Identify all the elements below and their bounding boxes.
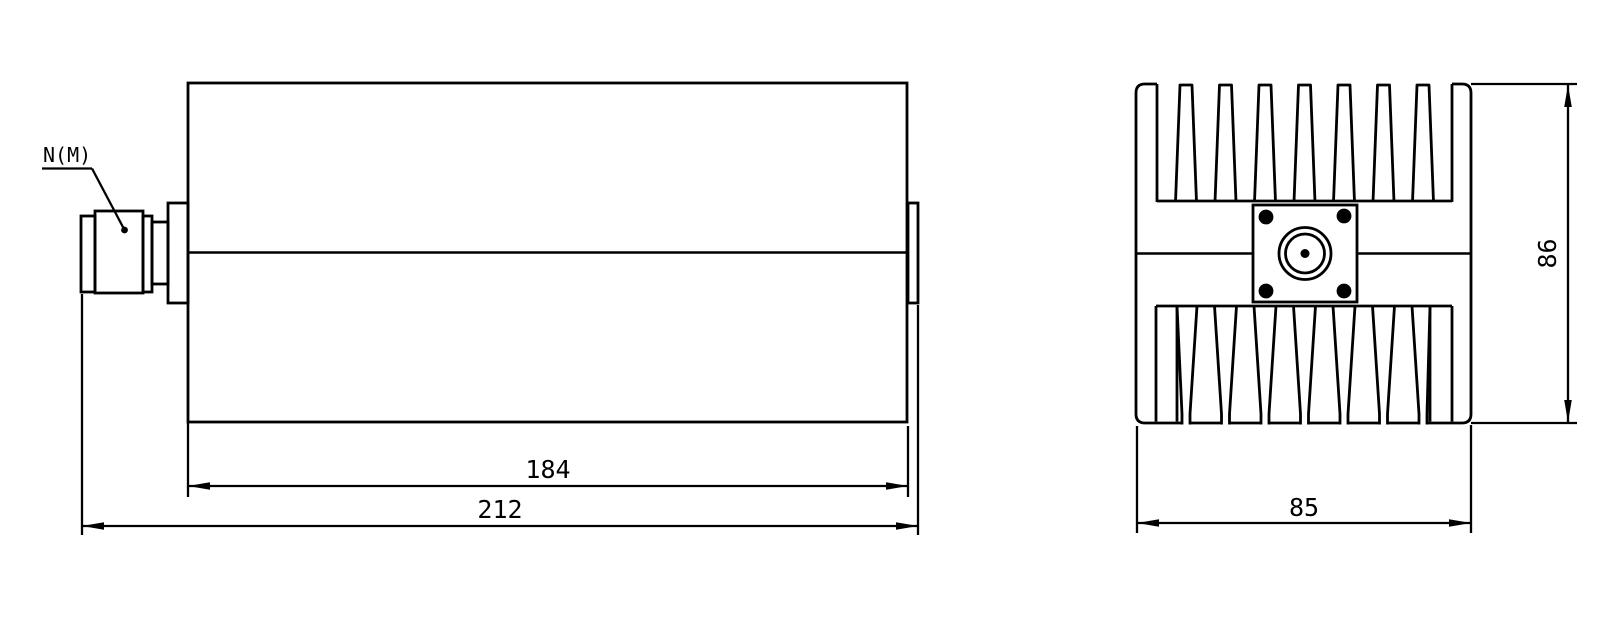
drawing-svg: N(M) 184 212 <box>0 0 1619 637</box>
connector-center-pin <box>1301 249 1310 258</box>
connector-label: N(M) <box>43 143 91 167</box>
dim-text-height: 86 <box>1533 238 1562 268</box>
leader-dot <box>121 227 128 234</box>
screw-hole <box>1259 284 1274 299</box>
screw-hole <box>1337 284 1352 299</box>
technical-drawing-page: N(M) 184 212 <box>0 0 1619 637</box>
screw-hole <box>1259 210 1274 225</box>
dim-text-overall-length: 212 <box>477 495 522 524</box>
dim-text-body-length: 184 <box>525 455 570 484</box>
screw-hole <box>1337 209 1352 224</box>
dim-text-width: 85 <box>1289 493 1319 522</box>
